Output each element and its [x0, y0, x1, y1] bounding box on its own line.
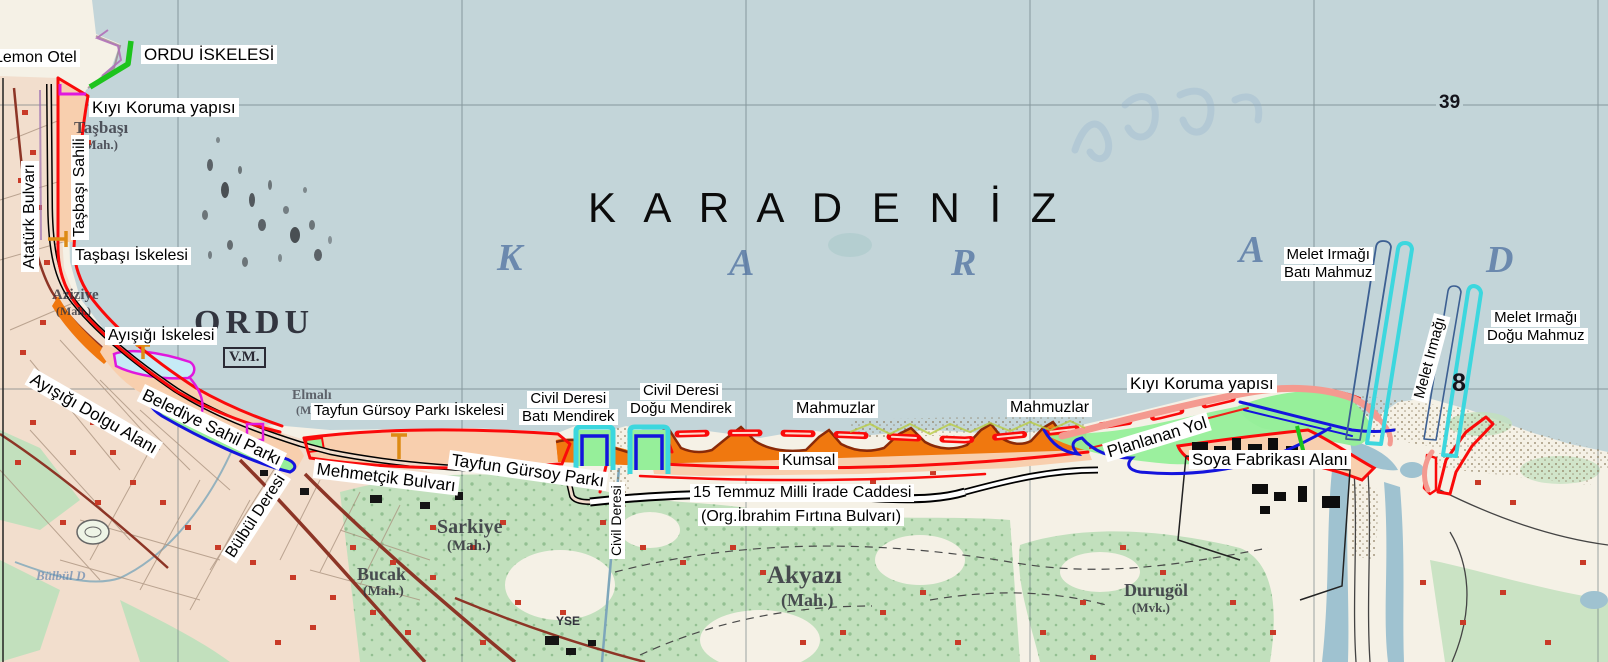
- label-line: Batı Mendirek: [519, 409, 618, 426]
- label-ayisigi-dolgu-alani: Ayışığı Dolgu Alanı: [24, 368, 163, 459]
- label-melet-bati-mahmuz: Melet Irmağı Batı Mahmuz: [1281, 247, 1375, 281]
- label-ayisigi-iskelesi: Ayışığı İskelesi: [105, 327, 217, 345]
- label-tasbasi-sahili: Taşbaşı Sahili: [71, 135, 89, 240]
- ghost-letter-k: K: [497, 236, 522, 280]
- label-line: Melet Irmağı: [1491, 310, 1580, 327]
- label-ordu-iskelesi: ORDU İSKELESİ: [141, 45, 277, 64]
- ghost-letter-a2: A: [1239, 228, 1264, 272]
- label-line: Civil Deresi: [527, 391, 609, 408]
- label-tayfun-gursoy-parki-iskelesi: Tayfun Gürsoy Parkı İskelesi: [311, 403, 507, 420]
- label-15-temmuz-caddesi: 15 Temmuz Milli İrade Caddesi: [690, 484, 914, 502]
- label-kiyi-koruma-west: Kıyı Koruma yapısı: [89, 98, 239, 117]
- label-line: Batı Mahmuz: [1281, 265, 1375, 282]
- label-melet-irmagi: Melet Irmağı: [1411, 313, 1450, 404]
- label-mehmetcik-bulvari: Mehmetçik Bulvarı: [313, 459, 460, 496]
- label-civil-deresi-bati-mendirek: Civil Deresi Batı Mendirek: [519, 391, 618, 425]
- district-durugol-mvk: (Mvk.): [1132, 600, 1170, 616]
- label-civil-deresi-vertical: Civil Deresi: [609, 482, 625, 559]
- grid-number-8: 8: [1452, 369, 1466, 398]
- district-akyazi: Akyazı: [767, 562, 842, 590]
- label-line: Melet Irmağı: [1284, 247, 1373, 264]
- ghost-letter-r: R: [951, 241, 976, 285]
- sea-title-karadeniz: K A R A D E N İ Z: [588, 184, 1065, 232]
- district-aziziye: Aziziye: [52, 287, 99, 304]
- district-bucak: Bucak: [357, 564, 406, 585]
- label-belediye-sahil-parki: Belediye Sahil Parkı: [137, 384, 287, 470]
- label-bulbul-deresi: Bülbül Deresi: [221, 469, 291, 564]
- label-kiyi-koruma-east: Kıyı Koruma yapısı: [1127, 374, 1277, 393]
- label-line: Doğu Mendirek: [627, 401, 735, 418]
- district-akyazi-mah: (Mah.): [781, 590, 834, 611]
- label-mahmuzlar-west: Mahmuzlar: [793, 400, 878, 418]
- district-sarkiye: Sarkiye: [437, 516, 503, 539]
- ghost-letter-d: D: [1486, 238, 1513, 282]
- district-durugol: Durugöl: [1124, 580, 1188, 601]
- district-bucak-mah: (Mah.): [363, 584, 404, 600]
- label-tasbasi-iskelesi: Taşbaşı İskelesi: [72, 247, 191, 265]
- label-yse: YSE: [556, 614, 580, 628]
- label-tayfun-gursoy-parki: Tayfun Gürsoy Parkı: [447, 450, 608, 491]
- district-sarkiye-mah: (Mah.): [447, 538, 491, 555]
- label-civil-deresi-dogu-mendirek: Civil Deresi Doğu Mendirek: [627, 383, 735, 417]
- label-ataturk-bulvari: Atatürk Bulvarı: [21, 161, 39, 272]
- label-line: Doğu Mahmuz: [1484, 328, 1588, 345]
- ghost-letter-a1: A: [729, 241, 754, 285]
- grid-number-39: 39: [1436, 92, 1463, 114]
- map-canvas: K A R A D E N İ Z K A R A D 39 8 Taşbaşı…: [0, 0, 1608, 662]
- label-melet-dogu-mahmuz: Melet Irmağı Doğu Mahmuz: [1484, 310, 1588, 344]
- label-line: Civil Deresi: [640, 383, 722, 400]
- label-kumsal: Kumsal: [779, 452, 838, 470]
- ghost-text-bulbul: Bülbül D: [36, 568, 86, 584]
- label-lemon-otel: Lemon Otel: [0, 49, 80, 67]
- district-aziziye-mah: (Mah.): [56, 304, 91, 319]
- text-layer: K A R A D E N İ Z K A R A D 39 8 Taşbaşı…: [0, 0, 1608, 662]
- label-mahmuzlar-east: Mahmuzlar: [1007, 399, 1092, 417]
- label-ibrahim-firtina-bulvari: (Org.İbrahim Fırtına Bulvarı): [698, 508, 904, 526]
- ordu-vm-box: V.M.: [223, 347, 266, 368]
- label-soya-fabrikasi-alani: Soya Fabrikası Alanı: [1189, 450, 1351, 469]
